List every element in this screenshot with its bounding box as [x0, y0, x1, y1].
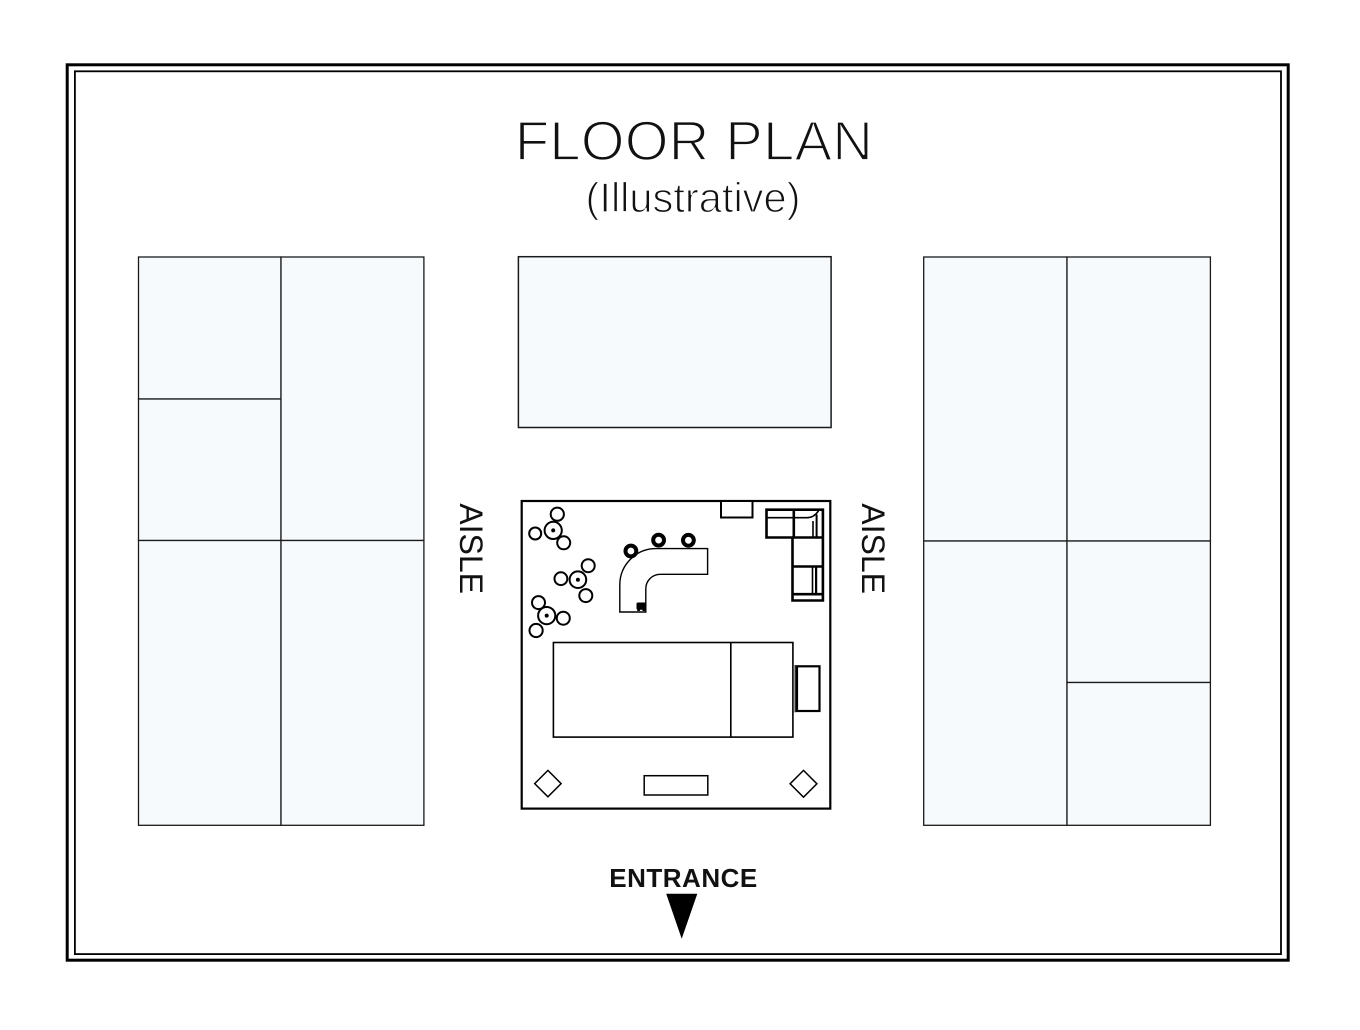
- svg-text:ENTRANCE: ENTRANCE: [609, 863, 757, 893]
- svg-text:AISLE: AISLE: [855, 503, 891, 594]
- svg-text:AISLE: AISLE: [453, 503, 489, 594]
- svg-text:(Illustrative): (Illustrative): [586, 174, 801, 221]
- svg-text:FLOOR PLAN: FLOOR PLAN: [515, 109, 873, 172]
